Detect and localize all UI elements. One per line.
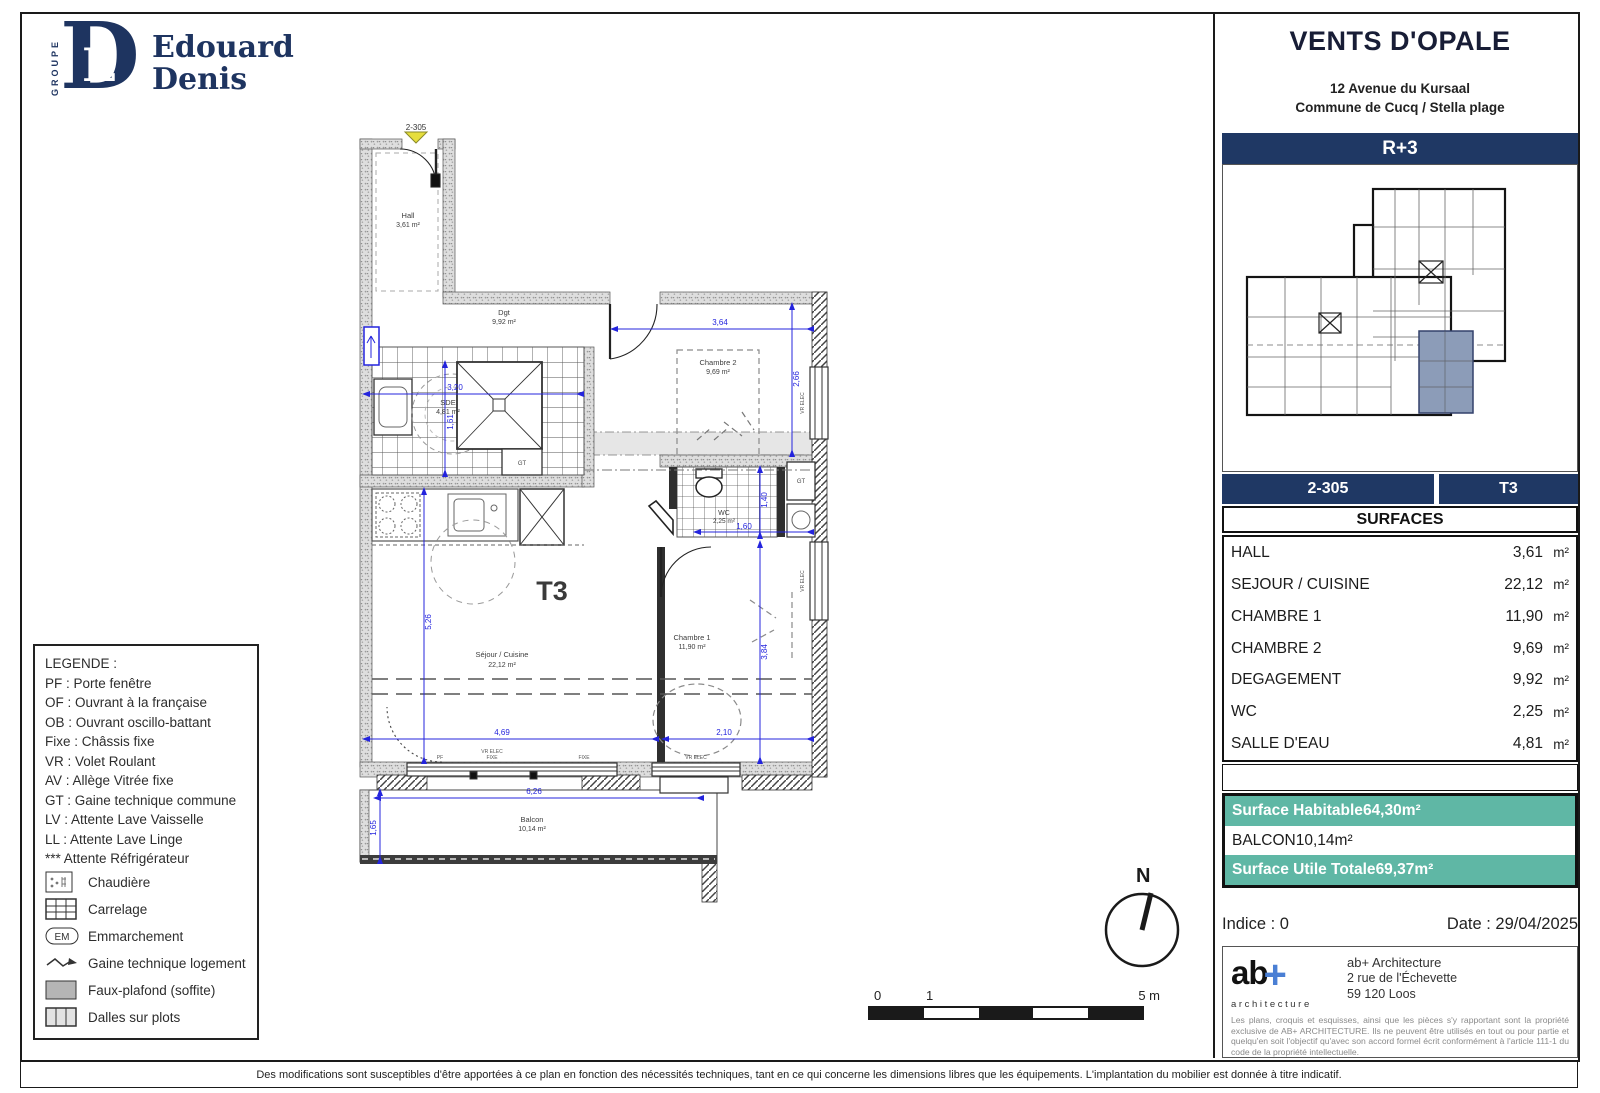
svg-text:2,66: 2,66 xyxy=(792,371,801,387)
svg-text:EM: EM xyxy=(55,932,70,943)
svg-text:1,60: 1,60 xyxy=(736,522,752,531)
step-icon: EM xyxy=(45,926,79,946)
svg-text:11,90 m²: 11,90 m² xyxy=(678,644,706,651)
type-label: T3 xyxy=(536,576,568,606)
key-plan xyxy=(1222,164,1578,472)
svg-text:Hall: Hall xyxy=(402,211,415,220)
project-title: VENTS D'OPALE xyxy=(1222,26,1578,57)
svg-text:2,25 m²: 2,25 m² xyxy=(713,518,736,525)
ed-monogram-icon: D E xyxy=(60,24,152,114)
legend-symbol-row: EM Emmarchement xyxy=(45,923,247,950)
project-address-1: 12 Avenue du Kursaal xyxy=(1222,81,1578,96)
svg-text:10,14 m²: 10,14 m² xyxy=(518,826,546,833)
legend-symbol-row: Gaine technique logement xyxy=(45,950,247,977)
table-row: CHAMBRE 29,69m² xyxy=(1224,633,1576,665)
floor-banner: R+3 xyxy=(1222,133,1578,164)
svg-text:1,65: 1,65 xyxy=(369,820,378,836)
ab-architecture-logo: ab+ architecture xyxy=(1231,953,1335,1010)
legend-box: LEGENDE : PF : Porte fenêtre OF : Ouvran… xyxy=(33,644,259,1040)
legend-abbr: AV : Allège Vitrée fixe xyxy=(45,771,247,791)
svg-text:2-305: 2-305 xyxy=(406,123,427,132)
modifications-disclaimer: Des modifications sont susceptibles d'êt… xyxy=(20,1061,1578,1088)
project-address-2: Commune de Cucq / Stella plage xyxy=(1222,100,1578,115)
svg-text:3,20: 3,20 xyxy=(447,383,463,392)
indice-label: Indice : 0 xyxy=(1222,915,1289,934)
legend-abbr: GT : Gaine technique commune xyxy=(45,791,247,811)
svg-text:VR ELEC: VR ELEC xyxy=(800,392,806,414)
legend-abbr: VR : Volet Roulant xyxy=(45,752,247,772)
scale-bar: 0 1 5 m xyxy=(868,988,1160,1032)
architect-box: ab+ architecture ab+ Architecture 2 rue … xyxy=(1222,946,1578,1058)
surfaces-header: SURFACES xyxy=(1222,506,1578,533)
svg-text:5,26: 5,26 xyxy=(424,614,433,630)
architect-notice: Les plans, croquis et esquisses, ainsi q… xyxy=(1223,1012,1577,1062)
unit-number: 2-305 xyxy=(1222,474,1434,504)
totals-table: Surface Habitable64,30m² BALCON10,14m² S… xyxy=(1222,793,1578,888)
spacer-box xyxy=(1222,764,1578,791)
slab-icon xyxy=(45,1007,79,1027)
entrance-marker: 2-305 xyxy=(405,123,427,143)
meta-row: Indice : 0 Date : 29/04/2025 xyxy=(1222,915,1578,934)
svg-text:PF: PF xyxy=(437,755,443,761)
brand-name: Edouard Denis xyxy=(152,32,294,95)
legend-title: LEGENDE : xyxy=(45,654,247,674)
boiler-icon xyxy=(45,871,79,893)
svg-text:GT: GT xyxy=(518,461,527,467)
svg-text:GT: GT xyxy=(797,479,806,485)
svg-text:Balcon: Balcon xyxy=(521,815,544,824)
total-row-balcon: BALCON10,14m² xyxy=(1225,826,1575,856)
svg-text:9,92 m²: 9,92 m² xyxy=(492,319,516,326)
table-row: DEGAGEMENT9,92m² xyxy=(1224,664,1576,696)
soffit-icon xyxy=(45,980,79,1000)
highlighted-unit xyxy=(1419,331,1473,413)
total-row-habitable: Surface Habitable64,30m² xyxy=(1225,796,1575,826)
legend-symbol-row: Dalles sur plots xyxy=(45,1004,247,1031)
north-label: N xyxy=(1136,865,1150,887)
svg-text:FIXE: FIXE xyxy=(578,755,590,761)
svg-text:Chambre 1: Chambre 1 xyxy=(673,633,710,642)
north-arrow: N xyxy=(1092,862,1192,982)
svg-text:VR ELEC: VR ELEC xyxy=(800,570,806,592)
svg-text:1,40: 1,40 xyxy=(760,492,769,508)
svg-text:WC: WC xyxy=(718,510,730,517)
table-row: SEJOUR / CUISINE22,12m² xyxy=(1224,569,1576,601)
legend-abbr: OB : Ouvrant oscillo-battant xyxy=(45,713,247,733)
room-label-dgt: Dgt9,92 m² xyxy=(492,308,516,326)
svg-text:4,69: 4,69 xyxy=(494,728,510,737)
floor-plan: GT GT xyxy=(352,122,838,917)
room-label-sejour: Séjour / Cuisine22,12 m² xyxy=(476,650,529,669)
table-row: HALL3,61m² xyxy=(1224,537,1576,569)
edouard-denis-logo: GROUPE D E Edouard Denis xyxy=(50,24,310,114)
furniture-dashed xyxy=(653,350,792,756)
svg-text:3,84: 3,84 xyxy=(760,644,769,660)
groupe-label: GROUPE xyxy=(50,28,60,106)
surfaces-table: HALL3,61m² SEJOUR / CUISINE22,12m² CHAMB… xyxy=(1222,535,1578,762)
room-label-chambre1: Chambre 111,90 m² xyxy=(673,633,710,651)
svg-text:22,12 m²: 22,12 m² xyxy=(488,662,516,669)
svg-text:VR ELEC: VR ELEC xyxy=(685,755,707,761)
table-row: CHAMBRE 111,90m² xyxy=(1224,601,1576,633)
date-label: Date : 29/04/2025 xyxy=(1447,915,1578,934)
svg-text:Dgt: Dgt xyxy=(498,308,511,317)
legend-abbr: PF : Porte fenêtre xyxy=(45,674,247,694)
svg-text:Chambre 2: Chambre 2 xyxy=(699,358,736,367)
plan-sheet: GROUPE D E Edouard Denis LEGENDE : PF : … xyxy=(0,0,1600,1093)
tiling-icon xyxy=(45,898,79,920)
svg-text:6,26: 6,26 xyxy=(526,787,542,796)
svg-text:9,69 m²: 9,69 m² xyxy=(706,369,730,376)
svg-text:3,61 m²: 3,61 m² xyxy=(396,222,420,229)
svg-text:FIXE: FIXE xyxy=(486,755,498,761)
legend-symbol-row: Faux-plafond (soffite) xyxy=(45,977,247,1004)
table-row: SALLE D'EAU4,81m² xyxy=(1224,728,1576,760)
total-row-utile: Surface Utile Totale69,37m² xyxy=(1225,855,1575,885)
legend-abbr: LL : Attente Lave Linge xyxy=(45,830,247,850)
svg-text:3,64: 3,64 xyxy=(712,318,728,327)
panel-divider xyxy=(1213,12,1215,1058)
electrical-panel xyxy=(364,327,379,365)
ceiling-lines xyxy=(372,679,812,694)
duct-arrow-icon xyxy=(45,955,79,971)
svg-text:1,61: 1,61 xyxy=(446,414,455,430)
technical-cupboard xyxy=(520,489,564,545)
svg-text:2,10: 2,10 xyxy=(716,728,732,737)
legend-abbr: Fixe : Châssis fixe xyxy=(45,732,247,752)
room-label-chambre2: Chambre 29,69 m² xyxy=(699,358,736,376)
legend-symbol-row: Chaudière xyxy=(45,869,247,896)
svg-text:4,81 m²: 4,81 m² xyxy=(436,409,460,416)
svg-text:Séjour / Cuisine: Séjour / Cuisine xyxy=(476,650,529,659)
architect-address: ab+ Architecture 2 rue de l'Échevette 59… xyxy=(1347,953,1457,1010)
unit-type: T3 xyxy=(1439,474,1578,504)
unit-type-row: 2-305 T3 xyxy=(1222,474,1578,504)
legend-symbol-row: Carrelage xyxy=(45,896,247,923)
scale-bar-segments xyxy=(868,1006,1144,1020)
svg-text:SDE: SDE xyxy=(440,398,455,407)
table-row: WC2,25m² xyxy=(1224,696,1576,728)
room-label-hall: Hall3,61 m² xyxy=(396,211,420,229)
legend-abbr: LV : Attente Lave Vaisselle xyxy=(45,810,247,830)
legend-abbr: OF : Ouvrant à la française xyxy=(45,693,247,713)
legend-abbr: *** Attente Réfrigérateur xyxy=(45,849,247,869)
